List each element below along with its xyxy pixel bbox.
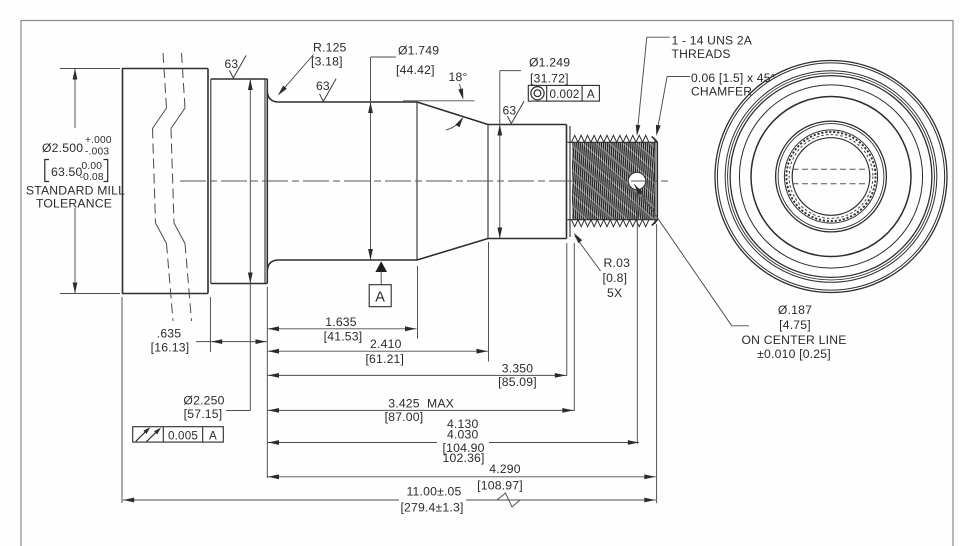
- svg-text:63.50: 63.50: [51, 165, 83, 179]
- svg-text:0.06 [1.5] x 45°: 0.06 [1.5] x 45°: [691, 71, 776, 85]
- svg-text:4.030: 4.030: [447, 428, 479, 442]
- svg-text:THREADS: THREADS: [672, 47, 731, 61]
- svg-text:STANDARD MILL: STANDARD MILL: [26, 184, 125, 198]
- svg-text:[31.72]: [31.72]: [530, 72, 569, 86]
- svg-text:[108.97]: [108.97]: [477, 479, 523, 493]
- svg-text:4.290: 4.290: [489, 462, 521, 476]
- svg-text:63: 63: [316, 79, 330, 93]
- svg-text:R.03: R.03: [604, 256, 631, 270]
- svg-text:[0.8]: [0.8]: [603, 271, 628, 285]
- svg-text:0.005: 0.005: [168, 430, 198, 443]
- svg-text:ON CENTER LINE: ON CENTER LINE: [741, 333, 846, 347]
- svg-text:[4.75]: [4.75]: [779, 318, 811, 332]
- svg-text:R.125: R.125: [313, 41, 347, 55]
- svg-text:+.000: +.000: [85, 135, 112, 146]
- svg-text:63: 63: [503, 104, 517, 118]
- svg-text:Ø1.749: Ø1.749: [398, 44, 439, 58]
- svg-text:[16.13]: [16.13]: [151, 341, 190, 355]
- svg-text:102.36]: 102.36]: [443, 451, 485, 465]
- svg-text:[41.53]: [41.53]: [324, 330, 363, 344]
- svg-text:A: A: [587, 88, 595, 101]
- svg-text:MAX: MAX: [427, 396, 454, 410]
- svg-text:0.00: 0.00: [82, 161, 103, 172]
- svg-text:Ø.187: Ø.187: [778, 303, 812, 317]
- svg-text:-.003: -.003: [85, 147, 109, 158]
- svg-text:A: A: [375, 290, 385, 306]
- svg-text:3.425: 3.425: [388, 396, 420, 410]
- svg-text:1.635: 1.635: [325, 315, 357, 329]
- svg-text:1 - 14 UNS 2A: 1 - 14 UNS 2A: [672, 34, 753, 48]
- svg-text:A: A: [209, 430, 217, 443]
- svg-text:-0.08: -0.08: [80, 172, 104, 183]
- svg-text:Ø2.500: Ø2.500: [42, 141, 83, 155]
- svg-text:[3.18]: [3.18]: [311, 55, 343, 69]
- svg-text:18°: 18°: [449, 70, 468, 84]
- svg-text:[61.21]: [61.21]: [365, 352, 404, 366]
- svg-text:5X: 5X: [607, 286, 622, 300]
- svg-text:63: 63: [225, 57, 239, 71]
- svg-text:[57.15]: [57.15]: [184, 407, 223, 421]
- svg-text:[44.42]: [44.42]: [396, 63, 435, 77]
- svg-text:11.00±.05: 11.00±.05: [406, 485, 461, 499]
- svg-text:3.350: 3.350: [502, 361, 534, 375]
- svg-text:[87.00]: [87.00]: [385, 410, 424, 424]
- svg-text:CHAMFER: CHAMFER: [691, 84, 752, 98]
- svg-text:2.410: 2.410: [370, 337, 402, 351]
- svg-text:0.002: 0.002: [549, 88, 579, 101]
- svg-text:Ø1.249: Ø1.249: [529, 56, 570, 70]
- svg-text:[279.4±1.3]: [279.4±1.3]: [400, 501, 463, 515]
- svg-text:±0.010 [0.25]: ±0.010 [0.25]: [757, 347, 831, 361]
- svg-text:TOLERANCE: TOLERANCE: [36, 197, 112, 211]
- svg-text:Ø2.250: Ø2.250: [183, 394, 224, 408]
- svg-text:[85.09]: [85.09]: [498, 375, 537, 389]
- svg-text:.635: .635: [157, 327, 182, 341]
